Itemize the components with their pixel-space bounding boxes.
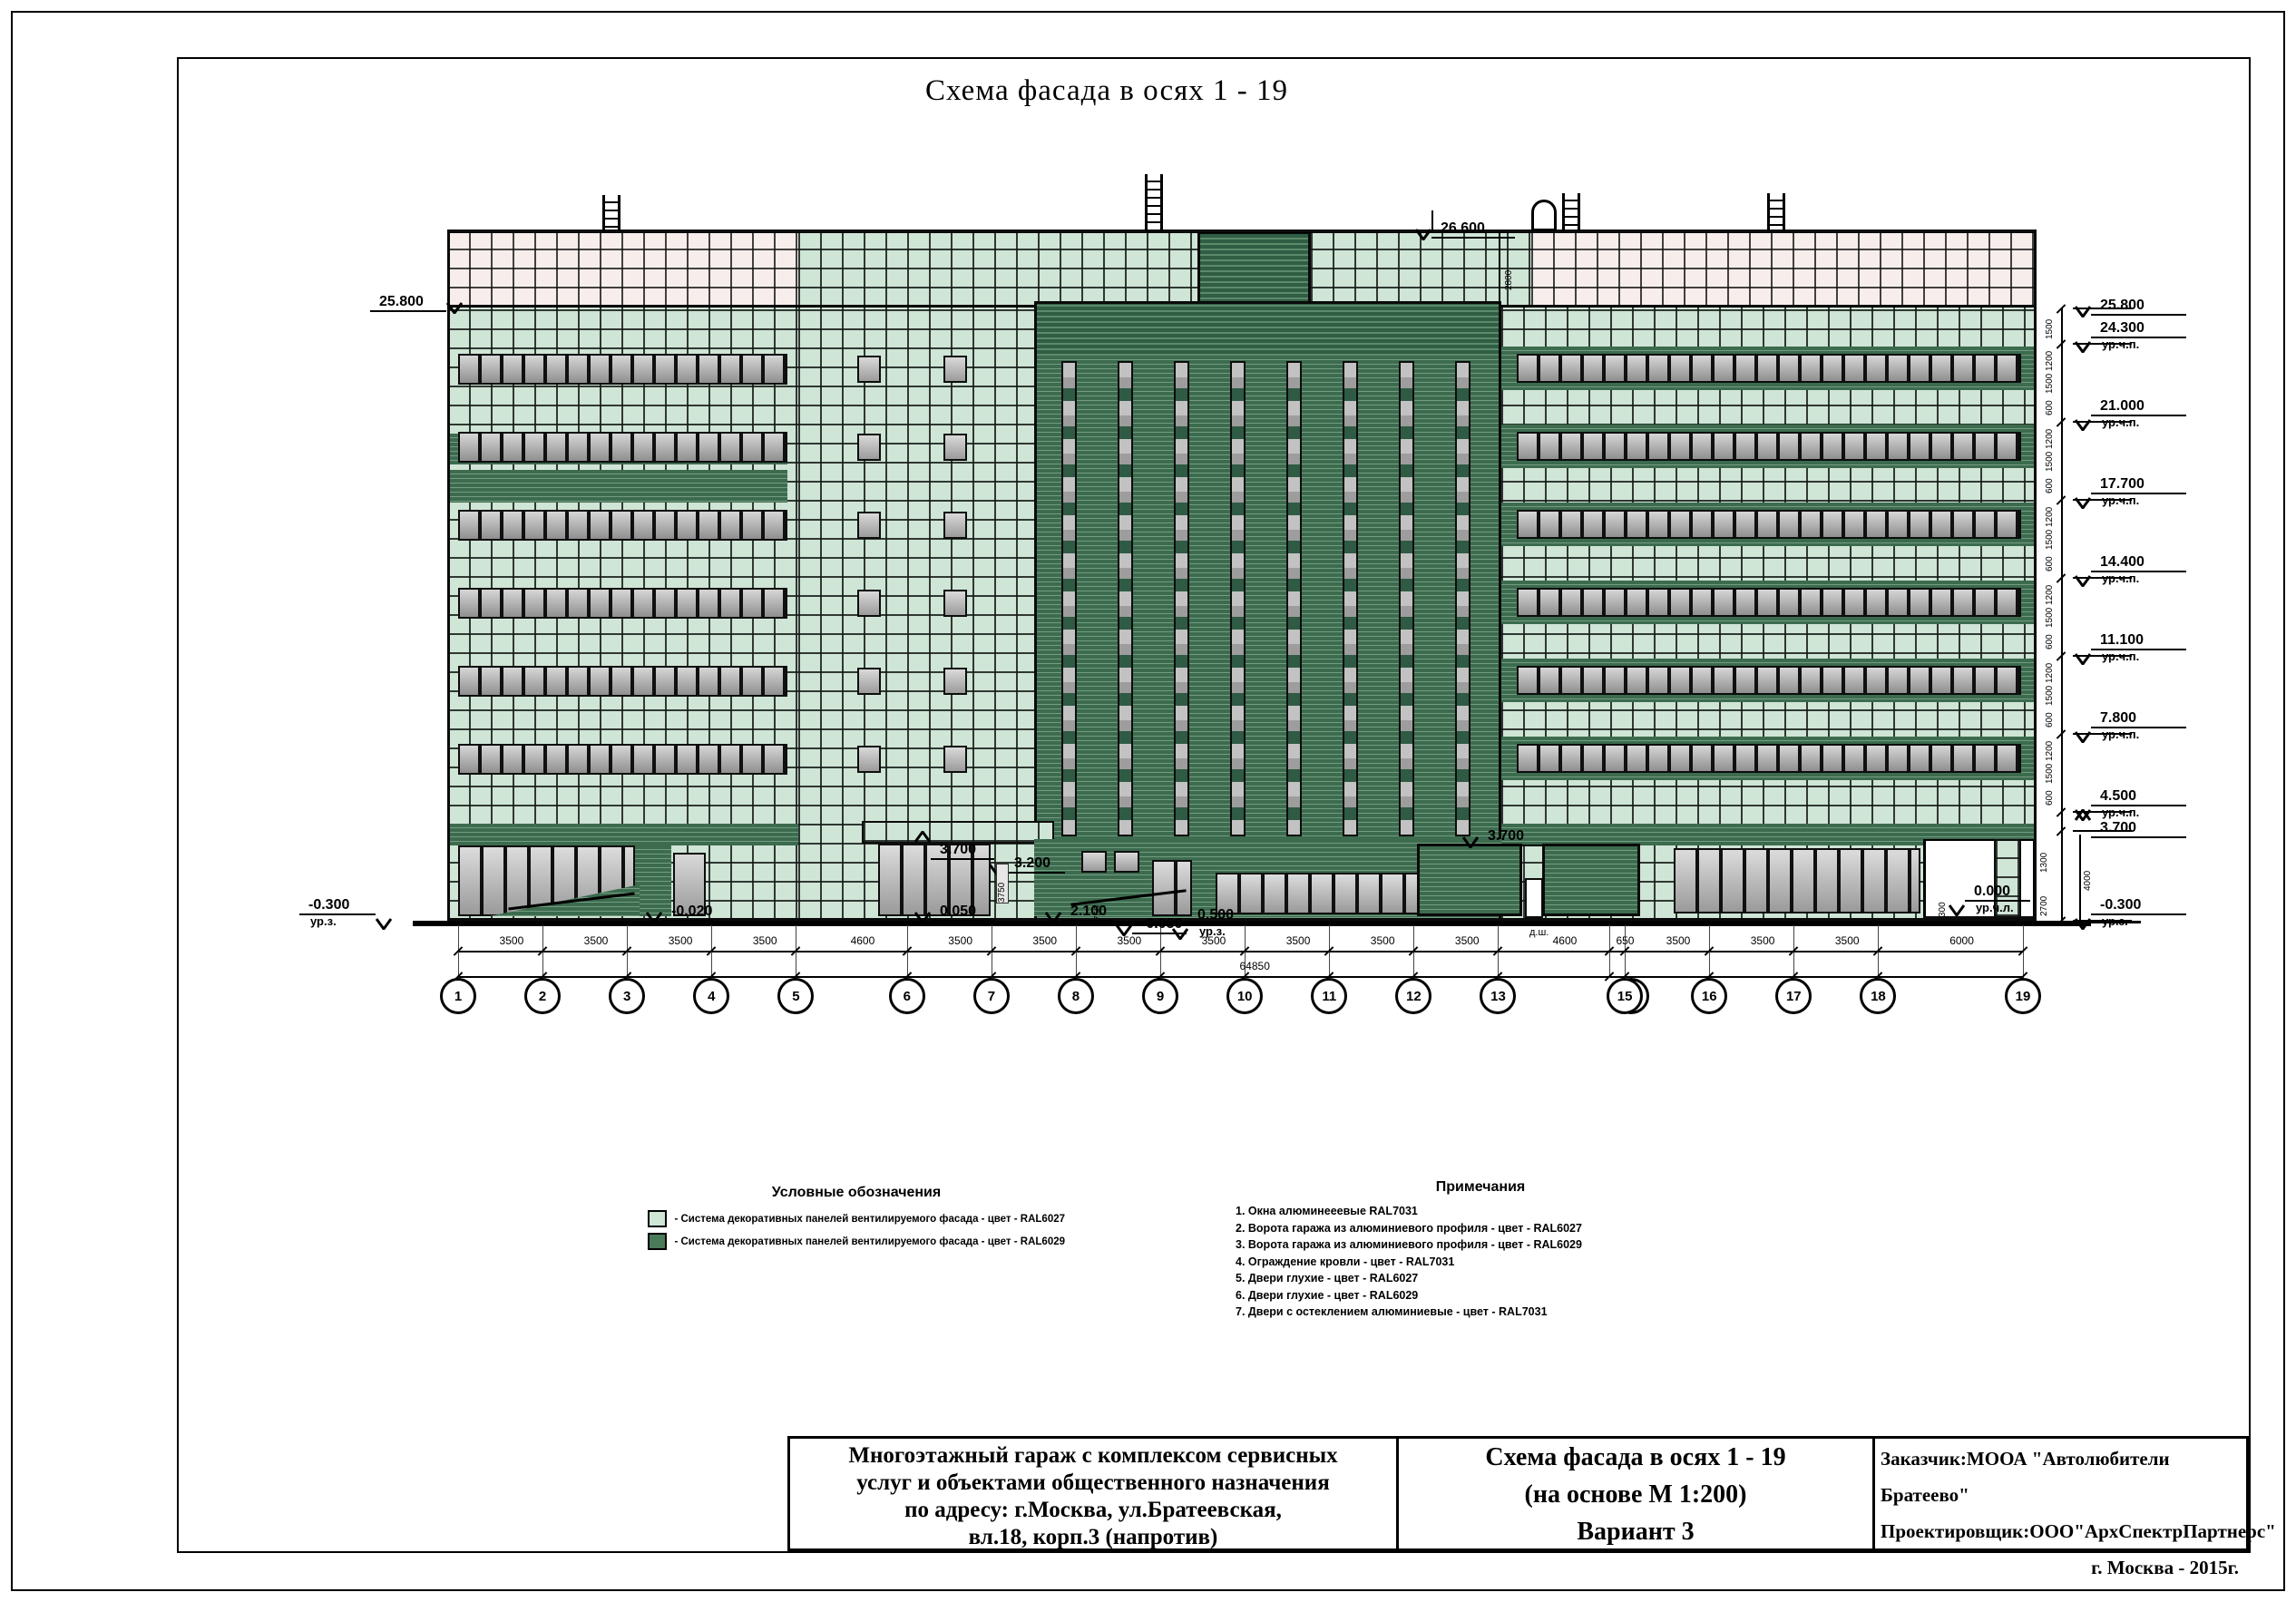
base-step-dim: 300 bbox=[1938, 894, 1947, 917]
building-outline bbox=[447, 230, 2037, 921]
vertical-dim-label: 1200 bbox=[2045, 347, 2056, 371]
door-height-dim: 750 bbox=[1093, 894, 1104, 921]
vertical-dim-label: 600 bbox=[2045, 470, 2056, 493]
arrow-down-icon bbox=[2075, 653, 2091, 669]
elevation-value: 14.400 bbox=[2091, 554, 2186, 572]
legend-label: - Система декоративных панелей вентилиру… bbox=[674, 1236, 1065, 1247]
vertical-dim-line bbox=[2079, 835, 2081, 921]
notes: Примечания 1. Окна алюминееевые RAL70312… bbox=[1236, 1179, 1744, 1321]
elevation-value: 0.500 bbox=[1188, 907, 1241, 925]
arrow-down-icon bbox=[2075, 731, 2091, 747]
legend-item: - Система декоративных панелей вентилиру… bbox=[648, 1210, 1065, 1227]
vertical-dim-label: 1500 bbox=[2045, 526, 2056, 550]
axis-circle: 9 bbox=[1142, 978, 1178, 1014]
arrow-down-icon bbox=[1949, 904, 1965, 921]
axis-dimension-label: 3500 bbox=[1835, 934, 1837, 949]
arrow-down-icon bbox=[1415, 229, 1431, 245]
elevation-mark: 7.800ур.ч.п. bbox=[2075, 705, 2197, 741]
elevation-level-label: ур.ч.п. bbox=[2091, 494, 2186, 507]
elevation-value: 0.000 bbox=[1965, 884, 2030, 902]
legend-item: - Система декоративных панелей вентилиру… bbox=[648, 1233, 1065, 1250]
note-item: 3. Ворота гаража из алюминиевого профиля… bbox=[1236, 1236, 1744, 1254]
roof-height-dim: 2800 bbox=[1504, 254, 1515, 290]
axis-circle: 19 bbox=[2005, 978, 2041, 1014]
titleblock-line: (на основе М 1:200) bbox=[1399, 1476, 1872, 1513]
elevation-value: 0.050 bbox=[931, 904, 994, 922]
elevation-mark: 3.700 bbox=[1462, 810, 1553, 846]
vertical-dim-label: 1500 bbox=[2045, 682, 2056, 706]
roof-ladder bbox=[1767, 193, 1785, 231]
legend: Условные обозначения - Система декоратив… bbox=[648, 1185, 1065, 1250]
axis-circle: 16 bbox=[1691, 978, 1727, 1014]
arrow-down-icon bbox=[2075, 918, 2091, 934]
titleblock-line: Заказчик:МООА "Автолюбители Братеево" bbox=[1881, 1441, 2239, 1513]
legend-swatch bbox=[648, 1210, 667, 1227]
arrow-up-icon bbox=[914, 831, 931, 847]
axis-circle: 18 bbox=[1860, 978, 1896, 1014]
legend-heading: Условные обозначения bbox=[648, 1185, 1065, 1201]
titleblock-line: вл.18, корп.3 (напротив) bbox=[790, 1524, 1396, 1551]
axis-circle: 3 bbox=[609, 978, 645, 1014]
elevation-level-label: ур.з. bbox=[299, 915, 376, 928]
axis-dimension-label: 3500 bbox=[584, 934, 586, 949]
arrow-up-icon bbox=[2075, 809, 2091, 825]
axis-circle: 10 bbox=[1226, 978, 1263, 1014]
axis-dimension-label: 6000 bbox=[1949, 934, 1951, 949]
arrow-down-icon bbox=[1172, 928, 1188, 944]
axis-dimension-label: 4600 bbox=[851, 934, 853, 949]
elevation-value: -0.300 bbox=[299, 897, 376, 915]
vertical-dim-label: 1500 bbox=[2045, 604, 2056, 628]
elevation-level-label: ур.з. bbox=[2091, 915, 2186, 928]
axis-dimension-label: 3500 bbox=[1371, 934, 1373, 949]
titleblock-line: Многоэтажный гараж с комплексом сервисны… bbox=[790, 1442, 1396, 1470]
arrow-down-icon bbox=[2075, 497, 2091, 513]
elevation-mark: -0.020 bbox=[646, 885, 724, 922]
titleblock-line: Проектировщик:ООО"АрхСпектрПартнерс" bbox=[1881, 1513, 2239, 1549]
elevation-level-label: ур.ч.п. bbox=[2091, 338, 2186, 351]
axis-dimension-label: 3500 bbox=[500, 934, 502, 949]
axis-circle: 13 bbox=[1480, 978, 1516, 1014]
axis-circle: 1 bbox=[440, 978, 476, 1014]
elevation-mark: 25.800 bbox=[370, 276, 474, 312]
axis-dimension-label: 3500 bbox=[1666, 934, 1668, 949]
arrow-down-icon bbox=[2075, 341, 2091, 357]
arrow-down-icon bbox=[2075, 575, 2091, 591]
arrow-down-icon bbox=[1116, 924, 1132, 941]
vertical-dim-label: 1500 bbox=[2045, 312, 2056, 339]
vertical-dim-label: 600 bbox=[2045, 704, 2056, 728]
vertical-dim-label: 1300 bbox=[2039, 836, 2050, 873]
dim-line-v bbox=[1499, 231, 1500, 307]
elevation-mark: 11.100ур.ч.п. bbox=[2075, 627, 2197, 663]
elevation-mark: 14.400ур.ч.п. bbox=[2075, 549, 2197, 585]
elevation-mark: 2.100 bbox=[1045, 885, 1125, 922]
elevation-level-label: ур.ч.п. bbox=[2091, 572, 2186, 585]
elevation-value: 11.100 bbox=[2091, 632, 2186, 650]
vertical-dim-label: 600 bbox=[2045, 782, 2056, 806]
notes-heading: Примечания bbox=[1236, 1179, 1725, 1196]
arrow-down-icon bbox=[914, 912, 931, 928]
elevation-mark: 21.000ур.ч.п. bbox=[2075, 393, 2197, 429]
axis-circle: 17 bbox=[1775, 978, 1812, 1014]
vertical-dim-label: 4000 bbox=[2083, 855, 2094, 891]
axis-circle: 4 bbox=[693, 978, 729, 1014]
vertical-dim-label: 1500 bbox=[2045, 760, 2056, 784]
elevation-mark: 25.800 bbox=[2075, 279, 2197, 316]
axis-circle: 15 bbox=[1607, 978, 1643, 1014]
titleblock-info: Заказчик:МООА "Автолюбители Братеево"Про… bbox=[1872, 1436, 2249, 1551]
note-item: 7. Двери с остеклением алюминиевые - цве… bbox=[1236, 1304, 1744, 1321]
elevation-level-label: ур.з. bbox=[1188, 925, 1241, 938]
axis-dimension-label: 3500 bbox=[669, 934, 670, 949]
elevation-level-label: ур.ч.л. bbox=[1965, 902, 2030, 914]
axis-circle: 12 bbox=[1395, 978, 1431, 1014]
elevation-value: 3.700 bbox=[931, 842, 994, 860]
axis-circle: 11 bbox=[1311, 978, 1347, 1014]
elevation-mark: 0.500ур.з. bbox=[1172, 902, 1252, 938]
elevation-mark: -0.300ур.з. bbox=[2075, 892, 2197, 928]
axis-dimension-label: 3500 bbox=[1751, 934, 1753, 949]
axis-circle: 2 bbox=[524, 978, 561, 1014]
note-item: 6. Двери глухие - цвет - RAL6029 bbox=[1236, 1287, 1744, 1304]
roof-ladder bbox=[1145, 174, 1163, 231]
axis-dimension-label: 3500 bbox=[1455, 934, 1457, 949]
axis-circle: 5 bbox=[777, 978, 814, 1014]
note-item: 1. Окна алюминееевые RAL7031 bbox=[1236, 1203, 1744, 1220]
legend-swatch bbox=[648, 1233, 667, 1250]
note-item: 4. Ограждение кровли - цвет - RAL7031 bbox=[1236, 1254, 1744, 1271]
elevation-value: -0.020 bbox=[662, 904, 713, 922]
elevation-value: 3.700 bbox=[1479, 828, 1542, 846]
vertical-dim-label: 1500 bbox=[2045, 370, 2056, 394]
elevation-mark: 3.700 bbox=[2075, 802, 2197, 838]
vertical-dim-label: 1200 bbox=[2045, 425, 2056, 449]
axis-circle: 8 bbox=[1058, 978, 1094, 1014]
vertical-dim-label: 600 bbox=[2045, 626, 2056, 650]
elevation-value: -0.300 bbox=[2091, 897, 2186, 915]
elevation-mark: 17.700ур.ч.п. bbox=[2075, 471, 2197, 507]
axis-dimension-label: 3500 bbox=[1032, 934, 1034, 949]
elevation-value: 25.800 bbox=[370, 294, 446, 312]
elevation-value: 21.000 bbox=[2091, 398, 2186, 416]
legend-label: - Система декоративных панелей вентилиру… bbox=[674, 1214, 1065, 1225]
titleblock-line: г. Москва - 2015г. bbox=[1881, 1549, 2239, 1586]
elevation-value: 25.800 bbox=[2091, 298, 2186, 316]
titleblock-line: услуг и объектами общественного назначен… bbox=[790, 1470, 1396, 1497]
arrow-down-icon bbox=[446, 302, 463, 318]
titleblock-line: Вариант 3 bbox=[1399, 1513, 1872, 1550]
arrow-down-icon bbox=[2075, 419, 2091, 435]
door-note-label: д.ш. bbox=[1529, 927, 1566, 940]
elevation-mark: 0.000ур.ч.л. bbox=[1949, 878, 2041, 914]
elevation-level-label: ур.ч.п. bbox=[2091, 416, 2186, 429]
vertical-dim-label: 1200 bbox=[2045, 659, 2056, 683]
elevation-value: 7.800 bbox=[2091, 710, 2186, 728]
arrow-down-icon bbox=[376, 918, 392, 934]
elevation-value: 17.700 bbox=[2091, 476, 2186, 494]
axis-dimension-label: 3500 bbox=[948, 934, 950, 949]
note-item: 5. Двери глухие - цвет - RAL6027 bbox=[1236, 1270, 1744, 1287]
facade-drawing: 1234567891011121314151617181935003500350… bbox=[0, 0, 2296, 1602]
axis-circle: 7 bbox=[973, 978, 1010, 1014]
elevation-value: 2.100 bbox=[1061, 904, 1114, 922]
titleblock-project: Многоэтажный гараж с комплексом сервисны… bbox=[787, 1436, 1399, 1551]
elevation-level-label: ур.ч.п. bbox=[2091, 650, 2186, 663]
vertical-dim-label: 1200 bbox=[2045, 581, 2056, 605]
axis-dimension-label: 3500 bbox=[753, 934, 755, 949]
roof-ladder bbox=[602, 195, 620, 231]
vertical-dim-label: 600 bbox=[2045, 392, 2056, 415]
vertical-dim-label: 1200 bbox=[2045, 503, 2056, 527]
roof-vent bbox=[1531, 200, 1557, 231]
vertical-dim-label: 1500 bbox=[2045, 448, 2056, 472]
titleblock-line: по адресу: г.Москва, ул.Братеевская, bbox=[790, 1497, 1396, 1524]
titleblock-line: Схема фасада в осях 1 - 19 bbox=[1399, 1439, 1872, 1476]
vertical-dim-label: 600 bbox=[2045, 548, 2056, 571]
arrow-down-icon bbox=[1045, 912, 1061, 928]
elevation-mark: -0.300ур.з. bbox=[299, 892, 403, 928]
note-item: 2. Ворота гаража из алюминиевого профиля… bbox=[1236, 1220, 1744, 1237]
elevation-level-label: ур.ч.п. bbox=[2091, 728, 2186, 741]
elevation-value: 26.600 bbox=[1431, 220, 1515, 239]
titleblock-sheet: Схема фасада в осях 1 - 19(на основе М 1… bbox=[1396, 1436, 1875, 1551]
roof-ladder bbox=[1562, 193, 1580, 231]
mark-stem bbox=[1431, 210, 1433, 231]
elevation-value: 24.300 bbox=[2091, 320, 2186, 338]
total-dimension-label: 64850 bbox=[1240, 960, 1242, 974]
axis-dimension-label: 650 bbox=[1616, 934, 1617, 949]
elevation-mark: 24.300ур.ч.п. bbox=[2075, 315, 2197, 351]
arrow-down-icon bbox=[646, 912, 662, 928]
vertical-dim-label: 1200 bbox=[2045, 738, 2056, 761]
elevation-mark: 0.050 bbox=[914, 885, 1005, 922]
elevation-value: 3.200 bbox=[1005, 855, 1065, 874]
axis-circle: 6 bbox=[889, 978, 925, 1014]
entry-height-dim: 3750 bbox=[996, 864, 1009, 904]
elevation-value: 3.700 bbox=[2091, 820, 2186, 838]
drawing-sheet: Схема фасада в осях 1 - 19 1234567891011… bbox=[0, 0, 2296, 1602]
axis-dimension-label: 3500 bbox=[1286, 934, 1288, 949]
arrow-down-icon bbox=[1462, 836, 1479, 853]
